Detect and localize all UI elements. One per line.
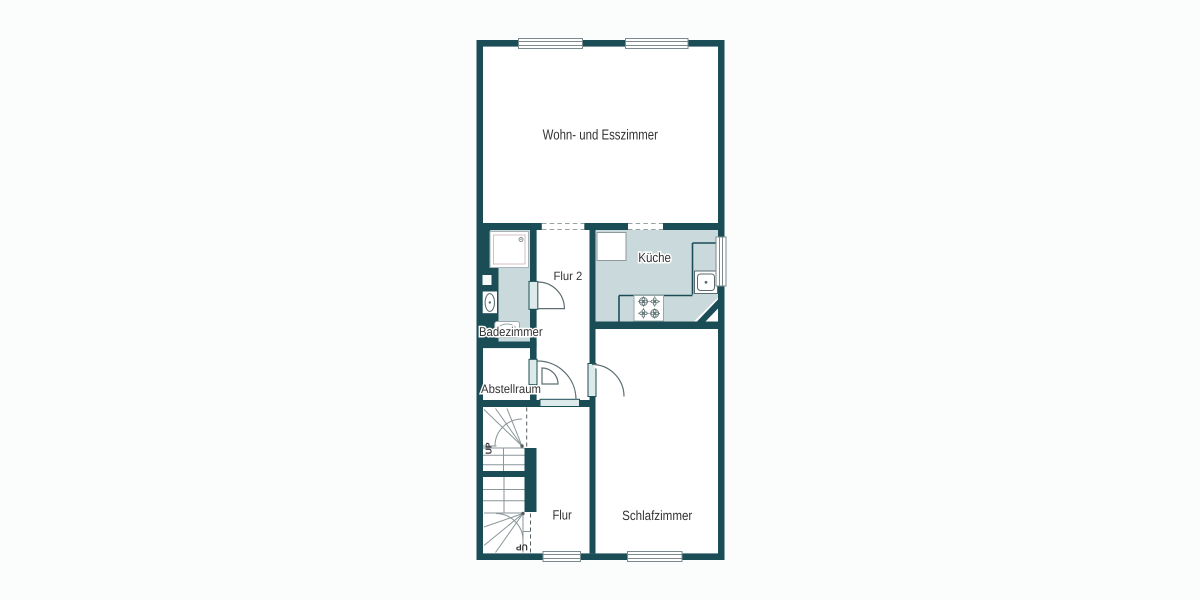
svg-text:Schlafzimmer: Schlafzimmer bbox=[622, 508, 693, 523]
svg-text:UP: UP bbox=[516, 542, 528, 552]
svg-text:Abstellraum: Abstellraum bbox=[481, 382, 541, 396]
svg-text:UP: UP bbox=[483, 442, 493, 454]
svg-text:Flur 2: Flur 2 bbox=[554, 269, 583, 283]
svg-text:Wohn- und Esszimmer: Wohn- und Esszimmer bbox=[543, 128, 658, 144]
svg-text:Flur: Flur bbox=[552, 508, 572, 523]
svg-text:Badezimmer: Badezimmer bbox=[479, 324, 543, 339]
svg-text:Küche: Küche bbox=[638, 250, 671, 265]
